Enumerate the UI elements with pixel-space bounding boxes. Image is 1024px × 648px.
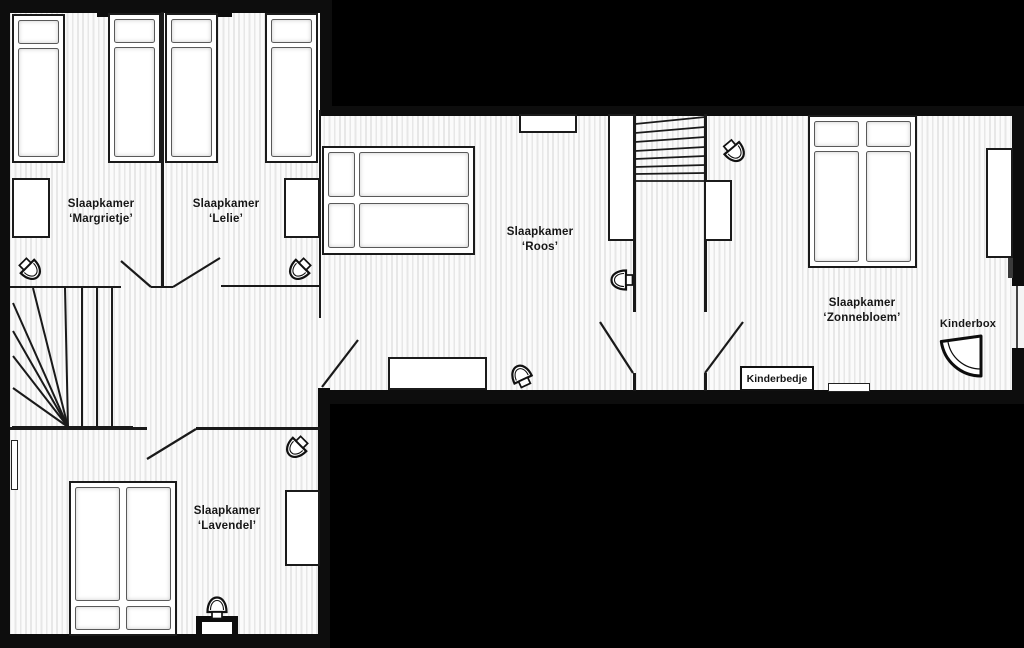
- dresser: [388, 357, 487, 390]
- wall-lavendel-top-right: [196, 427, 320, 430]
- wall-between-doors: [151, 286, 173, 289]
- wall-lavendel-top-left: [10, 427, 147, 430]
- pillow: [126, 606, 171, 630]
- mattress: [271, 47, 312, 157]
- room-label-margrietje: Slaapkamer‘Margrietje’: [31, 197, 171, 227]
- mattress: [75, 487, 120, 601]
- bed-single: [165, 13, 218, 163]
- chimney-inner: [202, 622, 232, 634]
- room-label-lelie: Slaapkamer‘Lelie’: [156, 197, 296, 227]
- kinderbox-label: Kinderbox: [916, 317, 1020, 332]
- pillow: [18, 20, 59, 44]
- wall-wing-bottom: [318, 390, 1024, 404]
- mattress: [814, 151, 859, 262]
- wall-divider-margrietje-lelie: [161, 12, 164, 288]
- mattress: [359, 152, 469, 197]
- kinderbedje-label: Kinderbedje: [747, 373, 808, 385]
- radiator: [828, 383, 870, 392]
- closet: [608, 114, 635, 241]
- bed-double: [808, 115, 917, 268]
- bed-single: [12, 14, 65, 163]
- pillow: [328, 152, 355, 197]
- wall-wing-right: [1012, 106, 1024, 404]
- kinderbedje-box: Kinderbedje: [740, 366, 814, 391]
- wall-top: [0, 0, 332, 13]
- pillow: [171, 19, 212, 43]
- pillow: [814, 121, 859, 147]
- sink-icon: [608, 267, 634, 293]
- wall-upper-right: [320, 0, 332, 112]
- radiator: [11, 440, 18, 490]
- wall-left: [0, 0, 10, 648]
- sink-icon: [204, 594, 230, 620]
- mattress: [114, 47, 155, 157]
- wall-stairwell-right-stub: [704, 373, 707, 391]
- wall-bottom-left: [0, 634, 330, 648]
- room-label-lavendel: Slaapkamer‘Lavendel’: [157, 504, 297, 534]
- floor-plan: Kinderbedje Slaapkamer‘Margrietje’ Slaap…: [0, 0, 1024, 648]
- wall-lelie-bottom: [221, 285, 320, 288]
- pillow: [328, 203, 355, 248]
- wall-stairwell-left-stub: [633, 373, 636, 391]
- closet: [519, 114, 577, 133]
- pillow: [114, 19, 155, 43]
- wardrobe: [986, 148, 1013, 258]
- bed-single: [265, 13, 318, 163]
- mattress: [866, 151, 911, 262]
- bed-double: [322, 146, 475, 255]
- room-label-roos: Slaapkamer‘Roos’: [470, 225, 610, 255]
- pillow: [271, 19, 312, 43]
- mattress: [171, 47, 212, 157]
- pillow: [75, 606, 120, 630]
- closet: [704, 180, 732, 241]
- bed-single: [108, 13, 161, 163]
- flue: [1008, 258, 1013, 278]
- mattress: [359, 203, 469, 248]
- wall-margrietje-bottom: [10, 286, 121, 289]
- pillow: [866, 121, 911, 147]
- mattress: [18, 48, 59, 157]
